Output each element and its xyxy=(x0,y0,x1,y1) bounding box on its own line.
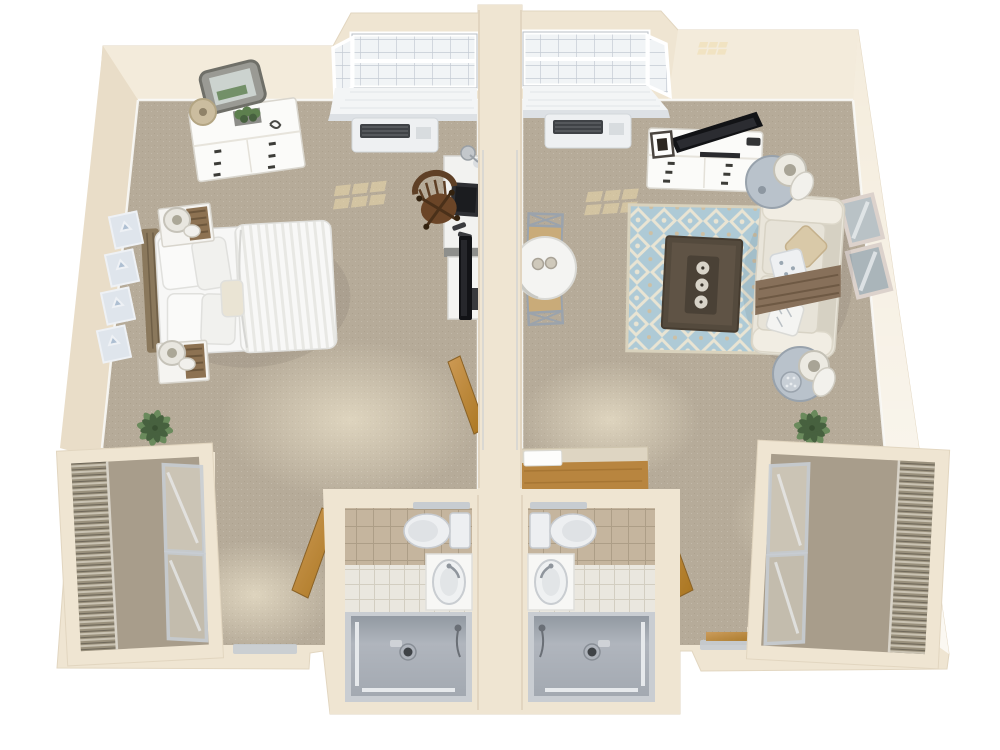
floorplan-svg xyxy=(0,0,1000,750)
window-glass-angled xyxy=(648,36,670,96)
shower-shelf xyxy=(598,640,610,647)
toilet-seat xyxy=(562,520,592,542)
bathroom-divider-wall xyxy=(477,489,523,714)
vanity-sink xyxy=(426,554,472,610)
sliding-doors xyxy=(159,463,210,643)
tv-stand-group xyxy=(444,236,483,320)
laptop-screen xyxy=(454,186,477,212)
top-wall-face-right xyxy=(668,30,858,100)
ptac-unit-left xyxy=(352,118,438,152)
floorplan-image xyxy=(0,0,1000,750)
tv-edge xyxy=(461,240,467,316)
right-closet xyxy=(746,440,949,669)
bathroom-block xyxy=(323,489,680,714)
left-closet xyxy=(56,443,223,666)
drain xyxy=(404,648,413,657)
toilet xyxy=(530,513,596,548)
ptac-unit-right xyxy=(545,114,631,148)
remote xyxy=(746,137,760,145)
left-entry-threshold xyxy=(233,644,297,654)
ptac-control xyxy=(416,127,431,139)
sliding-doors xyxy=(761,462,812,646)
toilet xyxy=(404,513,470,548)
bay-window-right xyxy=(523,32,670,118)
coffee-table-group xyxy=(662,236,743,332)
drain xyxy=(588,648,597,657)
ptac-control xyxy=(609,123,624,135)
center-wall-surface xyxy=(478,5,522,490)
toilet-seat xyxy=(408,520,438,542)
bay-window-left xyxy=(328,34,477,121)
entry-wood-strip xyxy=(706,632,754,641)
kitchenette-counter xyxy=(518,447,649,493)
door-threshold xyxy=(530,502,587,509)
shower-head xyxy=(539,625,546,632)
counter-tray xyxy=(524,450,562,466)
shower-head xyxy=(455,625,462,632)
center-wall xyxy=(478,5,522,490)
left-bathroom xyxy=(345,502,472,702)
dresser-lamp xyxy=(190,99,216,125)
picture-frame xyxy=(651,132,673,158)
roll-in-shower xyxy=(528,612,655,702)
candles xyxy=(694,261,709,309)
vanity-sink xyxy=(528,554,574,610)
right-bathroom xyxy=(528,502,655,702)
door-threshold xyxy=(413,502,470,509)
roll-in-shower xyxy=(345,612,472,702)
shower-shelf xyxy=(390,640,402,647)
accent-pillow xyxy=(221,280,245,317)
duvet xyxy=(235,220,338,353)
